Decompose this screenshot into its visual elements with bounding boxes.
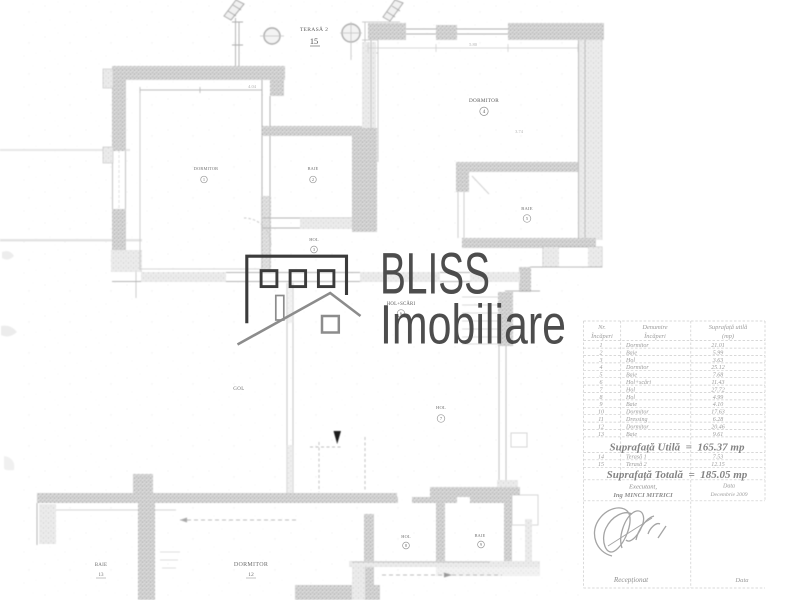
svg-text:5.99: 5.99 [713, 350, 724, 356]
svg-text:Imobiliare: Imobiliare [380, 293, 566, 356]
svg-text:3.74: 3.74 [515, 129, 524, 134]
svg-text:Suprafață utilă: Suprafață utilă [709, 324, 748, 331]
svg-text:Data: Data [734, 577, 749, 584]
svg-text:27.72: 27.72 [711, 387, 725, 393]
svg-text:11: 11 [598, 417, 604, 423]
svg-text:GOL: GOL [233, 387, 244, 392]
svg-text:7.68: 7.68 [713, 373, 724, 379]
svg-text:21.01: 21.01 [711, 343, 725, 349]
svg-text:Încăperi: Încăperi [590, 332, 613, 340]
svg-text:Dormitor: Dormitor [625, 365, 649, 371]
svg-text:HOL: HOL [401, 534, 411, 539]
svg-text:3.63: 3.63 [712, 358, 724, 364]
svg-text:HOL: HOL [309, 237, 319, 242]
svg-text:3: 3 [599, 358, 603, 364]
svg-text:8: 8 [405, 543, 407, 548]
svg-text:4.04: 4.04 [248, 84, 257, 89]
svg-text:12.15: 12.15 [711, 462, 725, 468]
svg-text:15: 15 [310, 37, 318, 46]
svg-text:13: 13 [99, 573, 105, 578]
svg-text:Încăperi: Încăperi [643, 332, 666, 340]
svg-text:13: 13 [598, 432, 604, 438]
svg-text:Hol: Hol [625, 358, 635, 364]
svg-text:1: 1 [600, 343, 603, 349]
svg-text:6.28: 6.28 [713, 417, 724, 423]
svg-text:17.63: 17.63 [711, 410, 725, 416]
svg-text:9.61: 9.61 [713, 432, 724, 438]
svg-text:Suprafață Utilă = 165.37 mp: Suprafață Utilă = 165.37 mp [610, 442, 745, 454]
svg-text:Dormitor: Dormitor [625, 410, 649, 416]
svg-text:TERASĂ 2: TERASĂ 2 [300, 25, 328, 33]
svg-text:Ing MINCI MITRICI: Ing MINCI MITRICI [612, 492, 673, 499]
svg-text:HOL: HOL [436, 405, 446, 410]
svg-text:25.12: 25.12 [711, 365, 725, 371]
svg-text:Dressing: Dressing [625, 417, 647, 423]
svg-text:Baie: Baie [626, 373, 637, 379]
svg-text:1: 1 [203, 177, 205, 182]
svg-text:Recepționat: Recepționat [613, 576, 649, 584]
svg-text:7.53: 7.53 [713, 455, 724, 461]
svg-text:14: 14 [598, 454, 604, 461]
svg-text:2: 2 [312, 177, 314, 182]
svg-text:9: 9 [480, 542, 482, 547]
svg-text:2: 2 [600, 350, 603, 356]
svg-text:20.46: 20.46 [711, 423, 725, 430]
svg-text:(mp): (mp) [722, 333, 734, 340]
svg-text:BAIE: BAIE [308, 166, 319, 171]
svg-text:4: 4 [600, 364, 603, 371]
svg-text:Dormitor: Dormitor [625, 343, 649, 349]
svg-text:Baie: Baie [626, 432, 637, 438]
svg-text:4.10: 4.10 [713, 401, 724, 408]
svg-text:Hol: Hol [625, 395, 635, 401]
svg-text:4.99: 4.99 [713, 394, 724, 401]
svg-text:9: 9 [600, 402, 603, 408]
svg-text:10: 10 [598, 410, 604, 416]
svg-text:Dormitor: Dormitor [625, 424, 649, 430]
svg-text:Denumire: Denumire [641, 324, 667, 331]
svg-text:Baie: Baie [626, 350, 637, 356]
svg-text:BAIE: BAIE [521, 206, 533, 211]
svg-text:Decembrie 2009: Decembrie 2009 [709, 492, 747, 498]
svg-text:Terasă 2: Terasă 2 [626, 462, 647, 468]
svg-text:11.43: 11.43 [711, 379, 724, 386]
svg-text:6: 6 [600, 380, 603, 386]
svg-text:BAIE: BAIE [95, 563, 107, 568]
svg-text:Terasă 1: Terasă 1 [626, 455, 647, 461]
svg-text:8: 8 [600, 395, 603, 401]
svg-text:15: 15 [598, 462, 604, 468]
svg-text:5: 5 [600, 373, 603, 379]
svg-text:Hol: Hol [625, 387, 635, 393]
svg-text:12: 12 [598, 424, 604, 430]
svg-text:Baie: Baie [626, 402, 637, 408]
svg-text:BAIE: BAIE [475, 533, 486, 538]
svg-text:5.80: 5.80 [469, 42, 478, 47]
svg-text:Nr.: Nr. [597, 324, 606, 331]
svg-text:12: 12 [248, 572, 254, 578]
svg-text:Data: Data [722, 484, 735, 490]
svg-text:DORMITOR: DORMITOR [194, 166, 218, 171]
svg-text:Suprafață Totală = 185.05 mp: Suprafață Totală = 185.05 mp [607, 469, 748, 481]
svg-text:Executant,: Executant, [628, 484, 657, 491]
svg-text:DORMITOR: DORMITOR [469, 98, 499, 104]
svg-text:Hol+scări: Hol+scări [625, 380, 651, 386]
svg-text:DORMITOR: DORMITOR [234, 562, 268, 568]
